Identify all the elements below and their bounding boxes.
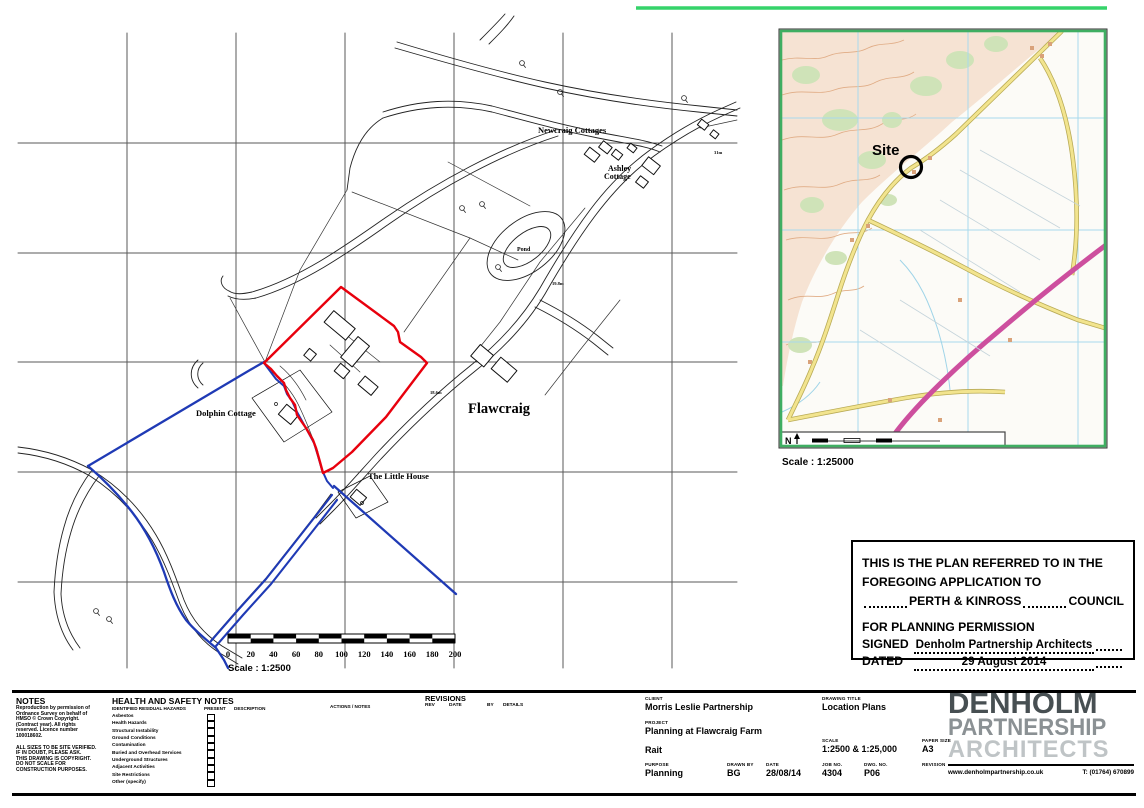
- tick-60: 60: [292, 649, 301, 659]
- hs-item-row: Other (specify): [112, 779, 362, 786]
- plan-grid: [18, 33, 737, 668]
- hs-header-row: IDENTIFIED RESIDUAL HAZARDS PRESENT DESC…: [112, 706, 362, 713]
- location-value: Rait: [645, 745, 662, 755]
- hs-col-description: DESCRIPTION: [234, 706, 265, 711]
- hs-col-present: PRESENT: [204, 706, 226, 711]
- hs-item-row: Asbestos: [112, 713, 362, 720]
- statement-council-row: PERTH & KINROSS COUNCIL: [862, 592, 1124, 611]
- label-spot-height-1: 31m: [714, 150, 723, 155]
- label-spot-height-2: 19.8m: [552, 281, 564, 286]
- hs-item-label: Buried and Overhead Services: [112, 751, 182, 756]
- hs-item-label: Adjacent Activities: [112, 765, 155, 770]
- hs-item-label: Health Hazards: [112, 721, 147, 726]
- leader-dots: [864, 605, 907, 608]
- hs-col-actions: ACTIONS / NOTES: [330, 704, 370, 709]
- logo-phone: T: (01764) 670899: [1083, 769, 1134, 776]
- hs-item-row: Site Restrictions: [112, 772, 362, 779]
- statement-line-1: THIS IS THE PLAN REFERRED TO IN THE: [862, 554, 1124, 573]
- hs-checkbox: [207, 780, 215, 788]
- dated-label: DATED: [862, 652, 914, 671]
- dated-value: 29 August 2014: [914, 655, 1094, 671]
- tick-160: 160: [403, 649, 416, 659]
- tick-0: 0: [226, 649, 230, 659]
- client-value: Morris Leslie Partnership: [645, 702, 753, 712]
- hs-item-label: Underground Structures: [112, 758, 168, 763]
- scale-value: 1:2500 & 1:25,000: [822, 744, 897, 754]
- rev-col-by: BY: [487, 703, 494, 708]
- tick-180: 180: [426, 649, 439, 659]
- logo-rule: [948, 764, 1134, 766]
- title-block: NOTES Reproduction by permission of Ordn…: [0, 690, 1144, 796]
- os-linework: [18, 14, 740, 664]
- hs-item-row: Ground Conditions: [112, 735, 362, 742]
- drawing-title-value: Location Plans: [822, 702, 886, 712]
- tick-40: 40: [269, 649, 278, 659]
- rev-col-rev: REV: [425, 703, 435, 708]
- plan-drawing-svg: Newcraig Cottages Ashley Cottage Pond Fl…: [0, 0, 1144, 808]
- pond: [475, 198, 578, 294]
- notes-column: NOTES Reproduction by permission of Ordn…: [16, 696, 108, 774]
- tick-80: 80: [315, 649, 324, 659]
- tick-100: 100: [335, 649, 348, 659]
- revision-label: REVISION: [922, 762, 946, 767]
- date-value: 28/08/14: [766, 768, 801, 778]
- drawing-title-label: DRAWING TITLE: [822, 696, 861, 701]
- tree-symbols: [94, 61, 688, 624]
- tick-120: 120: [358, 649, 371, 659]
- label-spot-height-3: 18.6m: [430, 390, 442, 395]
- dated-row: DATED 29 August 2014: [862, 654, 1124, 671]
- drawn-by-value: BG: [727, 768, 741, 778]
- architect-logo: DENHOLM PARTNERSHIP ARCHITECTS www.denho…: [948, 692, 1136, 776]
- revisions-title: REVISIONS: [425, 694, 635, 703]
- logo-website: www.denholmpartnership.co.uk: [948, 769, 1043, 776]
- council-name: PERTH & KINROSS: [909, 592, 1021, 611]
- inset-location-map: Site N Scale : 1:25000: [779, 29, 1107, 468]
- dwg-no-label: DWG. NO.: [864, 762, 888, 767]
- tick-200: 200: [449, 649, 462, 659]
- notes-line: CONSTRUCTION PURPOSES.: [16, 768, 108, 774]
- north-label: N: [785, 436, 792, 446]
- leader-dots: [1023, 605, 1066, 608]
- label-flawcraig: Flawcraig: [468, 401, 531, 417]
- hs-item-label: Contamination: [112, 743, 146, 748]
- label-ashley-2: Cottage: [604, 172, 631, 181]
- hs-item-row: Buried and Overhead Services: [112, 750, 362, 757]
- scale-text-2500: Scale : 1:2500: [228, 663, 291, 674]
- hs-item-row: Underground Structures: [112, 757, 362, 764]
- scale-label: SCALE: [822, 738, 839, 743]
- signed-value: Denholm Partnership Architects: [914, 638, 1094, 654]
- hs-item-row: Adjacent Activities: [112, 764, 362, 771]
- hs-col-hazards: IDENTIFIED RESIDUAL HAZARDS: [112, 706, 186, 711]
- job-no-label: JOB NO.: [822, 762, 842, 767]
- planning-statement-box: THIS IS THE PLAN REFERRED TO IN THE FORE…: [851, 540, 1135, 660]
- hs-item-label: Structural Instability: [112, 729, 158, 734]
- label-pond: Pond: [517, 247, 531, 253]
- paper-size-value: A3: [922, 744, 934, 754]
- hs-item-label: Asbestos: [112, 714, 134, 719]
- job-no-value: 4304: [822, 768, 842, 778]
- purpose-value: Planning: [645, 768, 683, 778]
- revisions-column: REVISIONS REV DATE BY DETAILS: [425, 694, 635, 711]
- client-label: CLIENT: [645, 696, 663, 701]
- health-safety-column: HEALTH AND SAFETY NOTES IDENTIFIED RESID…: [112, 696, 362, 786]
- hs-item-label: Ground Conditions: [112, 736, 156, 741]
- drawing-sheet: Newcraig Cottages Ashley Cottage Pond Fl…: [0, 0, 1144, 808]
- main-site-plan: Newcraig Cottages Ashley Cottage Pond Fl…: [18, 14, 740, 674]
- hs-title: HEALTH AND SAFETY NOTES: [112, 696, 362, 706]
- drawn-by-label: DRAWN BY: [727, 762, 754, 767]
- rev-col-details: DETAILS: [503, 703, 523, 708]
- scale-text-25000: Scale : 1:25000: [782, 457, 854, 468]
- label-newcraig-cottages: Newcraig Cottages: [538, 125, 607, 135]
- date-label: DATE: [766, 762, 779, 767]
- council-suffix: COUNCIL: [1068, 592, 1124, 611]
- statement-line-2: FOREGOING APPLICATION TO: [862, 573, 1124, 592]
- leader-dots: [1096, 665, 1122, 668]
- title-block-bottom-rule: [12, 793, 1136, 796]
- project-value: Planning at Flawcraig Farm: [645, 726, 762, 736]
- revisions-header-row: REV DATE BY DETAILS: [425, 703, 635, 711]
- paper-size-label: PAPER SIZE: [922, 738, 951, 743]
- tick-140: 140: [381, 649, 394, 659]
- hs-item-row: Contamination: [112, 742, 362, 749]
- hs-item-row: Structural Instability: [112, 728, 362, 735]
- scale-bar-2500: 0 20 40 60 80 100 120 140 160 180 200 Sc…: [226, 634, 462, 674]
- project-label: PROJECT: [645, 720, 668, 725]
- rev-col-date: DATE: [449, 703, 462, 708]
- site-marker-label: Site: [872, 142, 900, 159]
- ownership-boundary-line: [88, 362, 456, 668]
- leader-dots: [1096, 648, 1122, 651]
- label-dolphin-cottage: Dolphin Cottage: [196, 408, 256, 418]
- logo-line-3: ARCHITECTS: [948, 739, 1132, 761]
- label-little-house: The Little House: [368, 471, 429, 481]
- tick-20: 20: [246, 649, 255, 659]
- purpose-label: PURPOSE: [645, 762, 669, 767]
- buildings: [252, 119, 719, 518]
- hs-item-label: Site Restrictions: [112, 773, 150, 778]
- hs-item-label: Other (specify): [112, 780, 146, 785]
- hs-item-row: Health Hazards: [112, 720, 362, 727]
- dwg-no-value: P06: [864, 768, 880, 778]
